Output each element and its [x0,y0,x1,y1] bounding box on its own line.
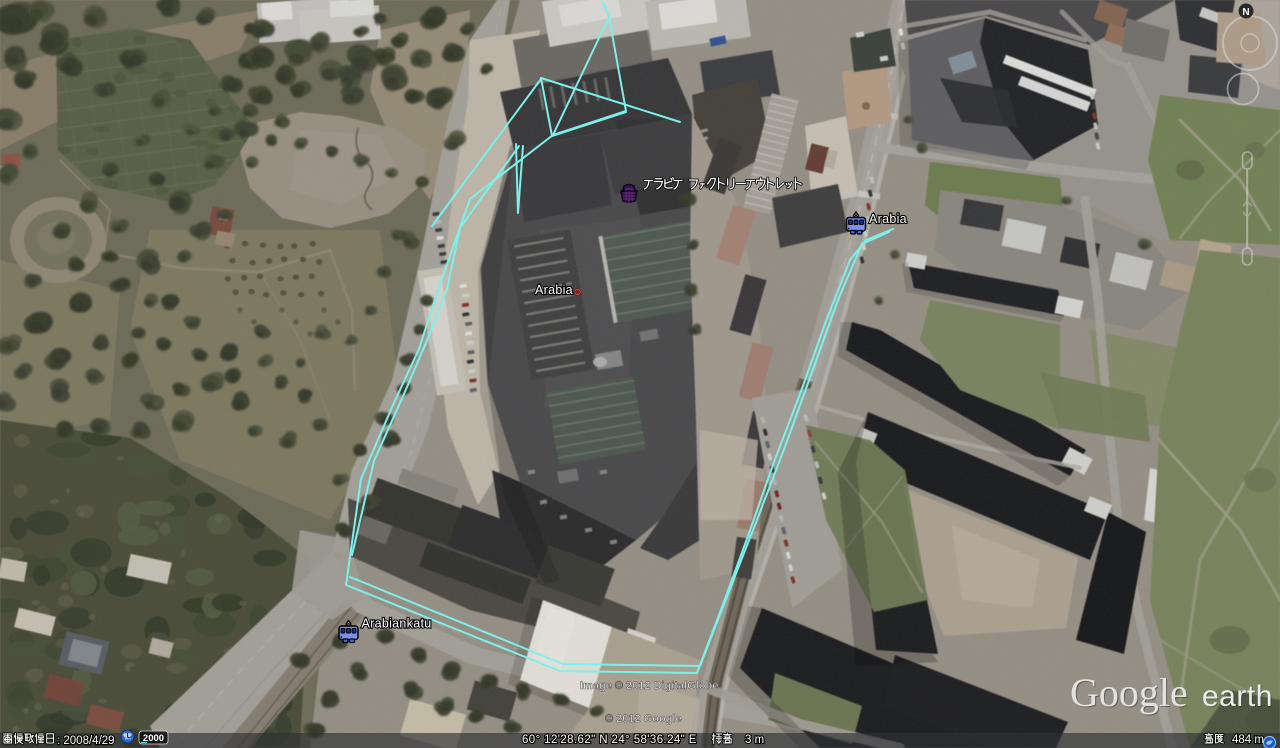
svg-text:3 m: 3 m [745,734,764,746]
svg-text:Arabia: Arabia [869,212,907,226]
svg-text:484 m: 484 m [1232,734,1264,746]
svg-text:Arabiankatu: Arabiankatu [362,617,432,631]
svg-text:© 2012 Google: © 2012 Google [605,713,682,725]
svg-text:Image © 2012 DigitalGlobe: Image © 2012 DigitalGlobe [580,680,718,692]
svg-text:Arabia: Arabia [535,283,573,297]
svg-text:Google: Google [1070,670,1188,715]
svg-text:N: N [1242,7,1249,18]
svg-text:earth: earth [1202,680,1273,713]
svg-text:: 2008/4/29: : 2008/4/29 [57,735,115,747]
svg-text:60° 12'28.62" N 24° 58'36.: 60° 12'28.62" N 24° 58'36.24" E [522,734,697,746]
